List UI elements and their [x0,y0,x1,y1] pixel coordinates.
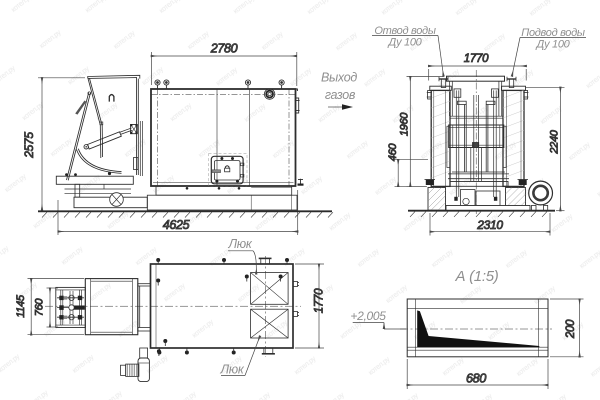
svg-text:2240: 2240 [549,129,561,154]
svg-text:+2,005: +2,005 [350,309,386,323]
svg-text:1770: 1770 [314,288,326,313]
svg-text:460: 460 [387,143,399,162]
svg-text:газов: газов [325,88,356,102]
svg-text:Люк: Люк [228,237,253,251]
svg-text:760: 760 [34,298,46,317]
svg-text:2780: 2780 [210,42,238,56]
svg-text:1960: 1960 [399,112,411,136]
svg-text:680: 680 [466,372,486,386]
svg-text:2310: 2310 [476,218,503,232]
svg-text:1770: 1770 [464,53,489,65]
svg-text:4625: 4625 [163,218,190,232]
svg-text:А (1:5): А (1:5) [455,268,499,285]
svg-text:1145: 1145 [15,294,27,318]
svg-text:Ду 100: Ду 100 [387,37,423,49]
svg-text:Люк: Люк [220,363,245,377]
svg-text:Выход: Выход [321,71,357,85]
svg-text:Ду 100: Ду 100 [535,39,571,51]
svg-text:2575: 2575 [22,132,36,159]
svg-text:200: 200 [565,319,577,339]
